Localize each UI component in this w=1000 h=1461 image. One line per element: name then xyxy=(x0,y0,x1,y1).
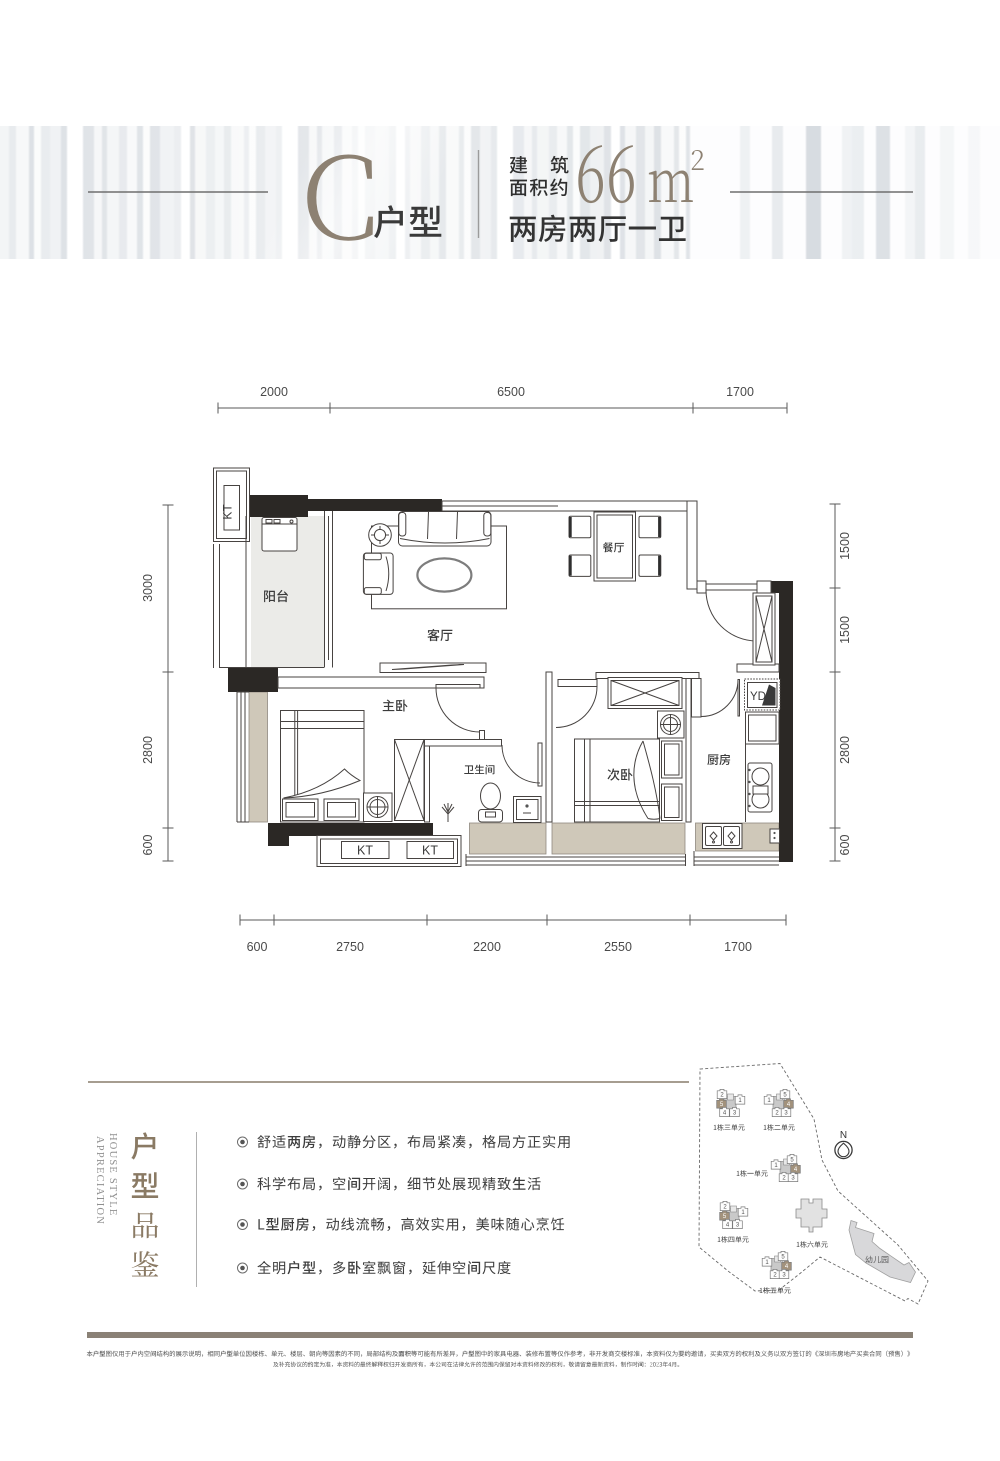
svg-text:N: N xyxy=(840,1130,847,1141)
svg-text:6500: 6500 xyxy=(497,385,525,399)
svg-text:600: 600 xyxy=(838,835,852,856)
svg-text:HOUSE STYLE: HOUSE STYLE xyxy=(107,1133,118,1217)
svg-text:KT: KT xyxy=(422,844,438,858)
svg-text:600: 600 xyxy=(247,940,268,954)
svg-text:1700: 1700 xyxy=(724,940,752,954)
svg-text:KT: KT xyxy=(221,504,235,520)
svg-text:1500: 1500 xyxy=(838,616,852,644)
svg-text:1700: 1700 xyxy=(726,385,754,399)
svg-text:2800: 2800 xyxy=(838,736,852,764)
svg-text:2550: 2550 xyxy=(604,940,632,954)
svg-text:2800: 2800 xyxy=(141,736,155,764)
svg-text:2000: 2000 xyxy=(260,385,288,399)
svg-text:2200: 2200 xyxy=(473,940,501,954)
svg-text:3000: 3000 xyxy=(141,574,155,602)
svg-text:1500: 1500 xyxy=(838,532,852,560)
svg-text:2750: 2750 xyxy=(336,940,364,954)
svg-text:YD: YD xyxy=(750,691,766,703)
svg-text:APPRECIATION: APPRECIATION xyxy=(94,1136,105,1225)
svg-text:600: 600 xyxy=(141,835,155,856)
svg-text:KT: KT xyxy=(357,844,373,858)
